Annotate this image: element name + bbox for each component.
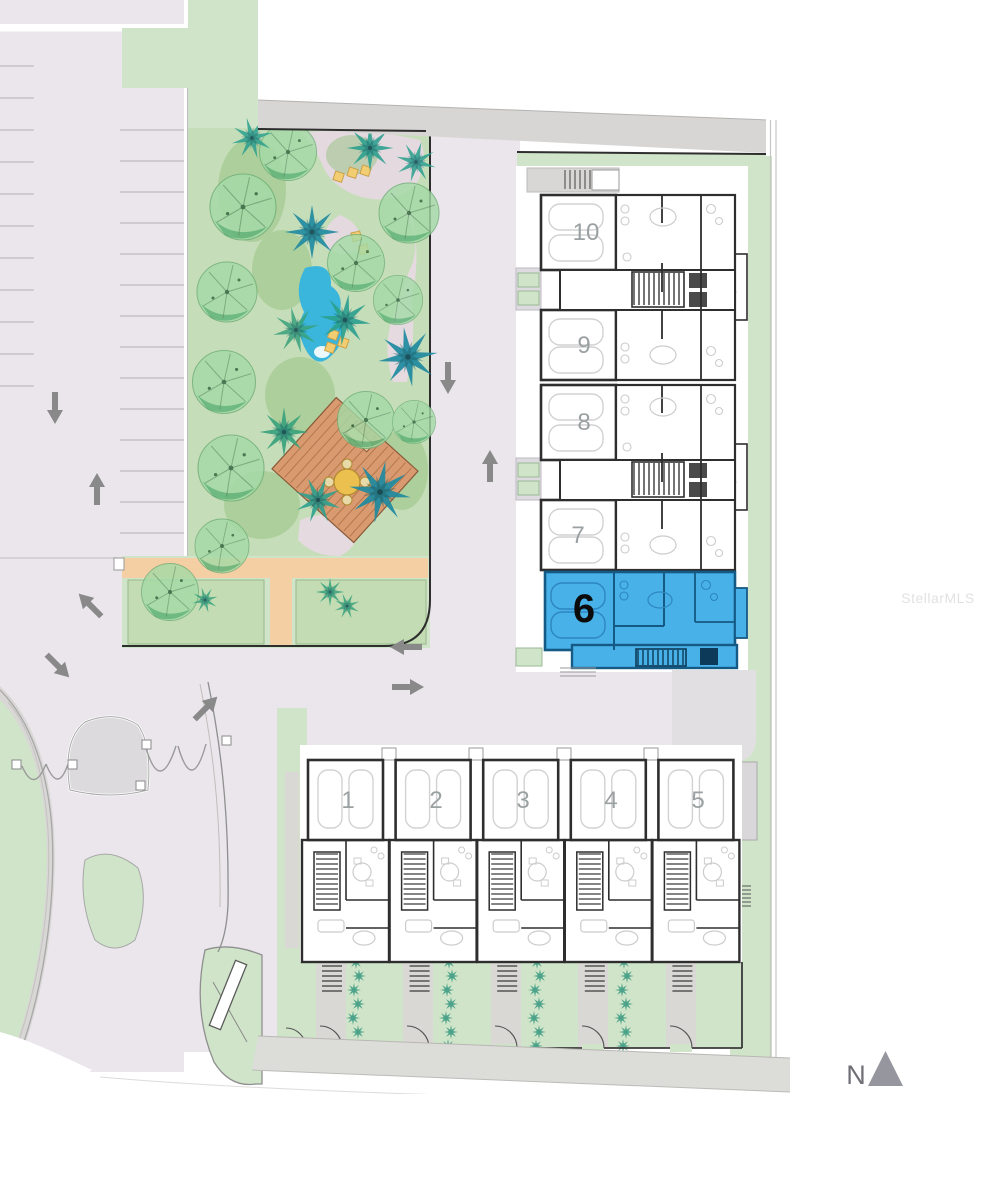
unit-1-label: 1 <box>341 787 354 814</box>
stellar-mls-watermark: StellarMLS <box>901 590 974 606</box>
north-label: N <box>846 1060 866 1090</box>
unit-7-label: 7 <box>571 522 584 549</box>
unit-9-label: 9 <box>577 332 590 359</box>
unit-4-label: 4 <box>604 787 617 814</box>
north-triangle-icon <box>868 1051 903 1086</box>
unit-10-label: 10 <box>573 219 600 246</box>
unit-3-label: 3 <box>516 787 529 814</box>
site-plan-image: 10 9 8 7 6 <box>0 0 981 1200</box>
site-plan-svg: 10 9 8 7 6 <box>0 0 981 1200</box>
north-arrow: N <box>846 1051 903 1090</box>
unit-2-label: 2 <box>429 787 442 814</box>
unit-6-label: 6 <box>573 587 595 631</box>
unit-8-label: 8 <box>577 409 590 436</box>
entry-island <box>200 947 262 1085</box>
unit-5-label: 5 <box>691 787 704 814</box>
